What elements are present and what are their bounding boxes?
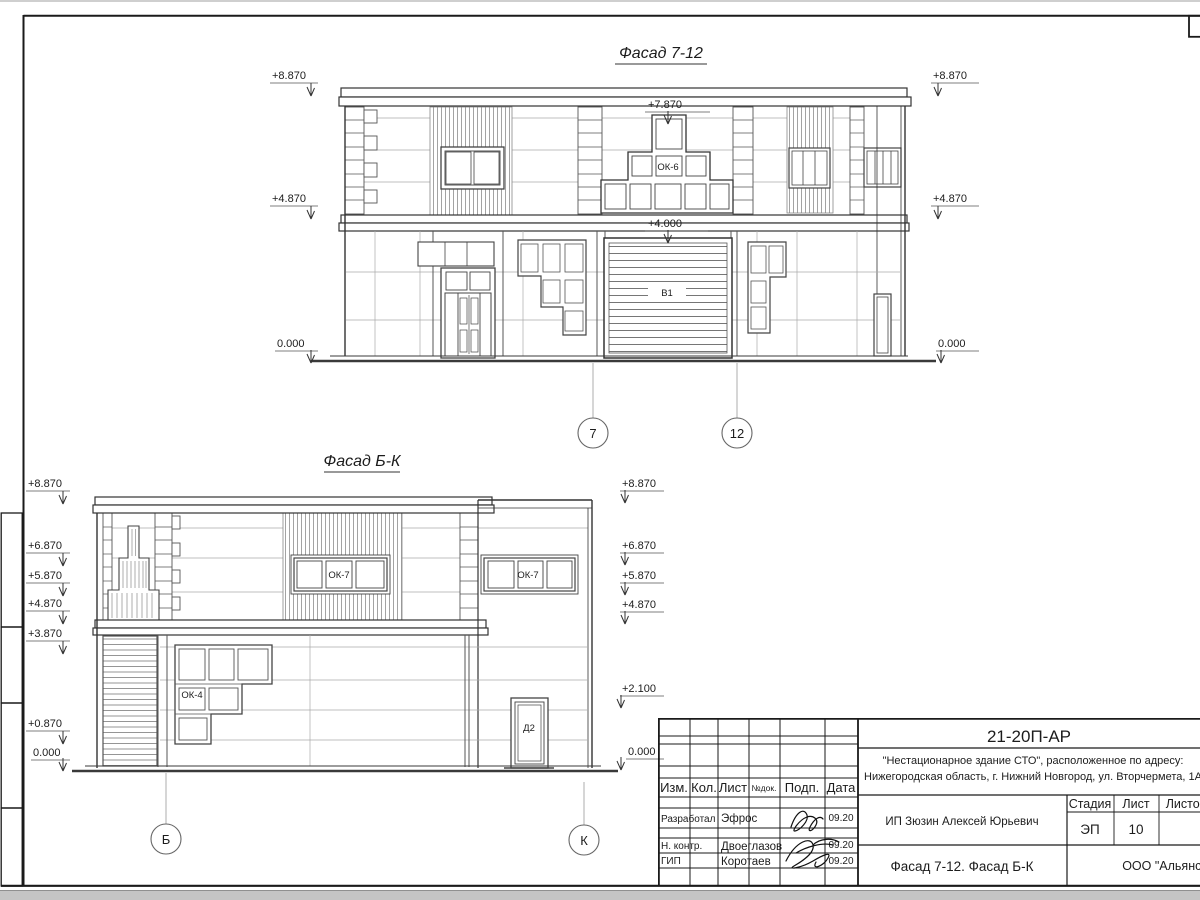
label-v1: В1 (661, 288, 673, 299)
window-ok7-right: ОК-7 (481, 555, 578, 594)
svg-text:+4.870: +4.870 (622, 599, 656, 611)
svg-text:0.000: 0.000 (938, 338, 966, 350)
svg-text:+4.870: +4.870 (933, 193, 967, 205)
svg-text:Кол.: Кол. (691, 780, 717, 795)
sheet-value: 10 (1128, 822, 1143, 837)
signer-role: ГИП (661, 856, 681, 867)
stepped-window-1f-right (748, 242, 786, 333)
window-ok4: ОК-4 (175, 645, 272, 744)
axis-7: 7 (578, 363, 608, 448)
drawing-canvas: Фасад 7-12 (0, 0, 1200, 900)
label-ok4: ОК-4 (181, 690, 202, 701)
facade-7-12: Фасад 7-12 (270, 45, 979, 448)
sheet-label: Лист (1122, 797, 1149, 811)
window-ok6: ОК-6 (601, 115, 733, 213)
cornice-mid (339, 223, 909, 231)
svg-text:+3.870: +3.870 (28, 628, 62, 640)
page-edge-top (0, 0, 1200, 2)
door-d2: Д2 (504, 698, 554, 768)
svg-text:+0.870: +0.870 (28, 718, 62, 730)
garage-door-b1: В1 (604, 238, 732, 358)
signer-name: Двоеглазов (721, 841, 782, 853)
facade-b-k: Фасад Б-К (26, 453, 664, 855)
company-name: ООО "Альянс" (1122, 859, 1200, 873)
title-block: 21-20П-АР "Нестационарное здание СТО", р… (658, 718, 1200, 886)
svg-text:+8.870: +8.870 (272, 70, 306, 82)
svg-text:+6.870: +6.870 (28, 540, 62, 552)
signer-date: 09.20 (828, 856, 853, 867)
svg-text:Изм.: Изм. (660, 780, 688, 795)
axis-k: К (569, 782, 599, 855)
cornice-top (95, 497, 492, 505)
svg-text:+6.870: +6.870 (622, 540, 656, 552)
frame-left-box (1, 808, 22, 886)
axis-b-label: Б (162, 832, 171, 847)
svg-text:Дата: Дата (827, 780, 857, 795)
svg-text:+8.870: +8.870 (622, 478, 656, 490)
svg-text:0.000: 0.000 (628, 746, 656, 758)
facade-b-k-title: Фасад Б-К (324, 453, 403, 470)
signer-name: Коротаев (721, 856, 771, 868)
project-address-line-2: Нижегородская область, г. Нижний Новгоро… (864, 771, 1200, 783)
frame-left-box (1, 513, 22, 627)
signer-date: 09.20 (828, 813, 853, 824)
stepped-window-2f-left (108, 526, 159, 621)
cornice-mid (93, 628, 488, 635)
svg-text:+4.000: +4.000 (648, 218, 682, 230)
facade-7-12-title: Фасад 7-12 (619, 45, 703, 62)
svg-text:+4.870: +4.870 (272, 193, 306, 205)
axis-12-label: 12 (730, 426, 744, 441)
signer-date: 09.20 (828, 840, 853, 851)
frame-corner-box (1189, 16, 1200, 37)
sheets-label: Листов (1166, 797, 1200, 811)
side-door (874, 294, 891, 356)
svg-text:Подп.: Подп. (785, 780, 820, 795)
cornice-top (341, 88, 907, 97)
signer-name: Эфрос (721, 813, 758, 825)
label-ok7: ОК-7 (328, 570, 349, 581)
roller-shutter (103, 636, 157, 766)
cornice-top (93, 505, 494, 513)
svg-text:+8.870: +8.870 (933, 70, 967, 82)
entrance-door (418, 242, 495, 358)
axis-b: Б (151, 773, 181, 854)
svg-text:+5.870: +5.870 (622, 570, 656, 582)
svg-text:+5.870: +5.870 (28, 570, 62, 582)
drawing-title: Фасад 7-12. Фасад Б-К (890, 859, 1033, 874)
axis-12: 12 (722, 363, 752, 448)
cornice-mid (341, 215, 907, 223)
title-block-column-headers: Изм. Кол. Лист №док. Подп. Дата (660, 780, 856, 795)
window-ok7-left: ОК-7 (291, 555, 390, 594)
stage-label: Стадия (1069, 797, 1112, 811)
svg-text:0.000: 0.000 (277, 338, 305, 350)
label-ok6: ОК-6 (657, 162, 678, 173)
window-2f-left (441, 147, 504, 189)
svg-text:+2.100: +2.100 (622, 683, 656, 695)
svg-text:+4.870: +4.870 (28, 598, 62, 610)
label-d2: Д2 (523, 723, 535, 734)
svg-text:0.000: 0.000 (33, 747, 61, 759)
frame-left-box (1, 627, 22, 703)
drawing-sheet: Фасад 7-12 (0, 0, 1200, 900)
client-name: ИП Зюзин Алексей Юрьевич (885, 816, 1038, 828)
svg-text:№док.: №док. (752, 783, 777, 793)
signer-role: Н. контр. (661, 841, 702, 852)
svg-text:Лист: Лист (719, 780, 747, 795)
project-address-line-1: "Нестационарное здание СТО", расположенн… (883, 755, 1184, 767)
frame-left-box (1, 703, 22, 808)
cornice-top (339, 97, 911, 106)
label-ok7: ОК-7 (517, 570, 538, 581)
axis-7-label: 7 (589, 426, 596, 441)
signer-role: Разработал (661, 813, 716, 825)
page-edge-bottom (0, 891, 1200, 900)
svg-text:+8.870: +8.870 (28, 478, 62, 490)
cornice-mid (95, 620, 486, 628)
svg-text:+7.870: +7.870 (648, 99, 682, 111)
axis-k-label: К (580, 833, 588, 848)
stage-value: ЭП (1080, 822, 1099, 837)
doc-number: 21-20П-АР (987, 727, 1071, 746)
stepped-window-1f-left (518, 240, 586, 335)
